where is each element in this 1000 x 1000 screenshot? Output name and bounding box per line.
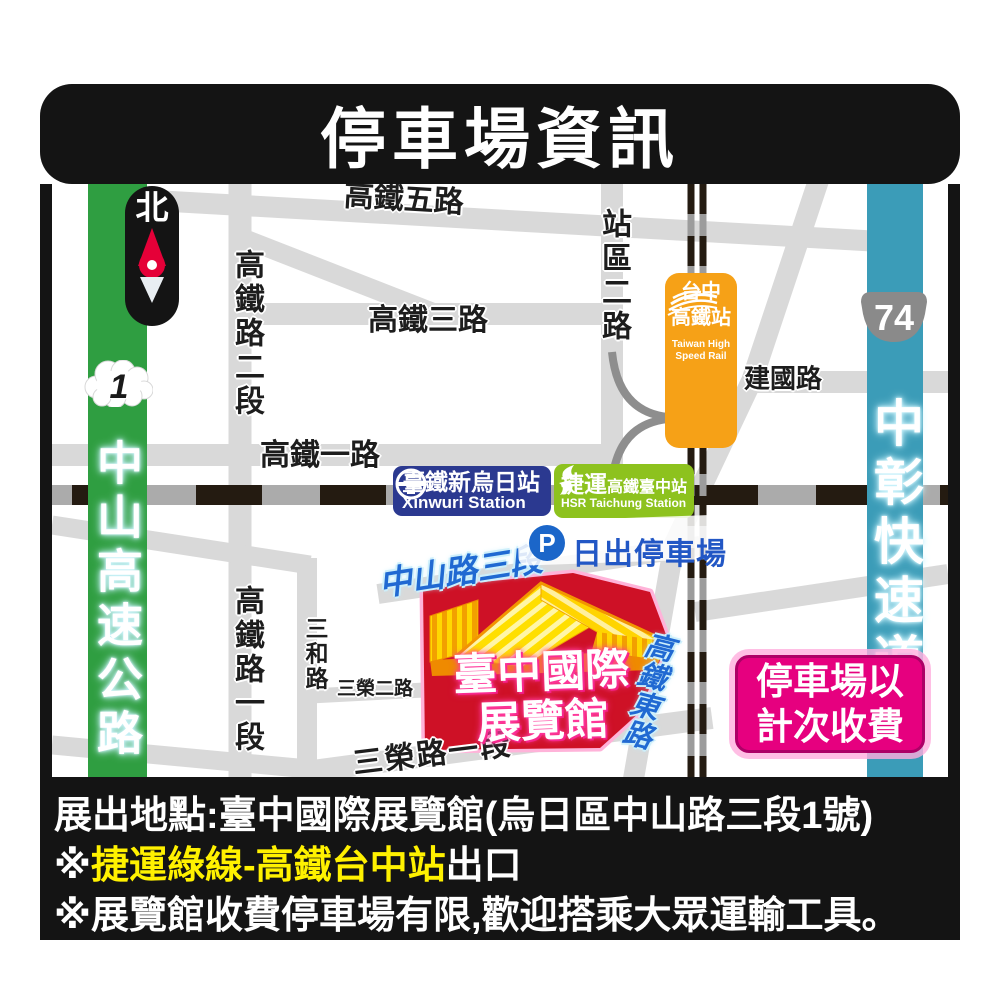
title-banner: 停車場資訊 bbox=[40, 84, 960, 184]
label-zhongshan-freeway: 中山高速公路 bbox=[84, 439, 150, 763]
metro-zh-suffix: 高鐵臺中站 bbox=[607, 479, 687, 496]
footer-line2: ※捷運綠線-高鐵台中站出口 bbox=[54, 841, 946, 891]
highway-1-number: 1 bbox=[110, 368, 129, 406]
footer-line2-highlight: 捷運綠線-高鐵台中站 bbox=[91, 845, 446, 887]
compass-tail-icon bbox=[140, 277, 164, 303]
label-sanhe-rd: 三和路 bbox=[298, 617, 332, 692]
venue-name: 臺中國際 展覽館 bbox=[425, 644, 658, 750]
expressway-74-number: 74 bbox=[874, 297, 914, 338]
label-jianguo-rd: 建國路 bbox=[744, 359, 822, 396]
label-station-area-2nd-rd: 站區二路 bbox=[591, 208, 635, 344]
footer-line3: ※展覽館收費停車場有限,歡迎搭乘大眾運輸工具。 bbox=[54, 891, 946, 941]
hsr-logo-icon bbox=[665, 285, 721, 319]
label-sanrong-2nd-rd: 三榮二路 bbox=[337, 674, 413, 701]
label-hsr-1st-rd: 高鐵一路 bbox=[260, 430, 380, 474]
road-hsr-5th bbox=[110, 198, 872, 241]
metro-en: HSR Taichung Station bbox=[561, 497, 687, 510]
hsr-station-en2: Speed Rail bbox=[675, 351, 726, 363]
compass-ring-icon bbox=[139, 252, 165, 278]
metro-logo-icon bbox=[554, 464, 580, 496]
fee-notice-line1: 停車場以 bbox=[756, 659, 904, 704]
fee-notice-box: 停車場以 計次收費 bbox=[735, 655, 925, 753]
footer-line2-suffix: 出口 bbox=[446, 845, 522, 887]
venue-name-line2: 展覽館 bbox=[427, 693, 659, 750]
north-compass: 北 bbox=[125, 186, 179, 326]
parking-p-letter: P bbox=[538, 528, 555, 559]
footer-line2-prefix: ※ bbox=[54, 845, 91, 887]
footer-notes: 展出地點:臺中國際展覽館(烏日區中山路三段1號) ※捷運綠線-高鐵台中站出口 ※… bbox=[40, 777, 960, 941]
content-frame: 高鐵五路 站區二路 高鐵路二段 高鐵三路 高鐵一路 高鐵路一段 三和路 三榮二路… bbox=[40, 184, 960, 940]
hsr-station-en1: Taiwan High bbox=[672, 339, 730, 351]
parking-name: 日出停車場 bbox=[572, 529, 727, 573]
tra-station-badge: 臺鐵新烏日站 Xinwuri Station bbox=[393, 466, 551, 516]
map-area: 高鐵五路 站區二路 高鐵路二段 高鐵三路 高鐵一路 高鐵路一段 三和路 三榮二路… bbox=[52, 184, 948, 777]
footer-line1: 展出地點:臺中國際展覽館(烏日區中山路三段1號) bbox=[54, 791, 946, 841]
parking-info-poster: 停車場資訊 bbox=[0, 0, 1000, 1000]
page-title: 停車場資訊 bbox=[320, 86, 680, 182]
north-label: 北 bbox=[125, 190, 179, 226]
label-hsr-rd-sec2: 高鐵路二段 bbox=[224, 249, 268, 419]
metro-station-badge: 捷運高鐵臺中站 HSR Taichung Station bbox=[554, 464, 694, 518]
venue-name-line1: 臺中國際 bbox=[425, 644, 657, 701]
parking-p-icon: P bbox=[529, 525, 565, 561]
label-hsr-rd-sec1: 高鐵路一段 bbox=[224, 585, 268, 755]
label-hsr-3rd-rd: 高鐵三路 bbox=[368, 295, 488, 339]
fee-notice-line2: 計次收費 bbox=[756, 704, 904, 749]
hsr-station-badge: 台中 高鐵站 Taiwan High Speed Rail bbox=[665, 273, 737, 448]
tra-logo-icon bbox=[393, 466, 429, 502]
